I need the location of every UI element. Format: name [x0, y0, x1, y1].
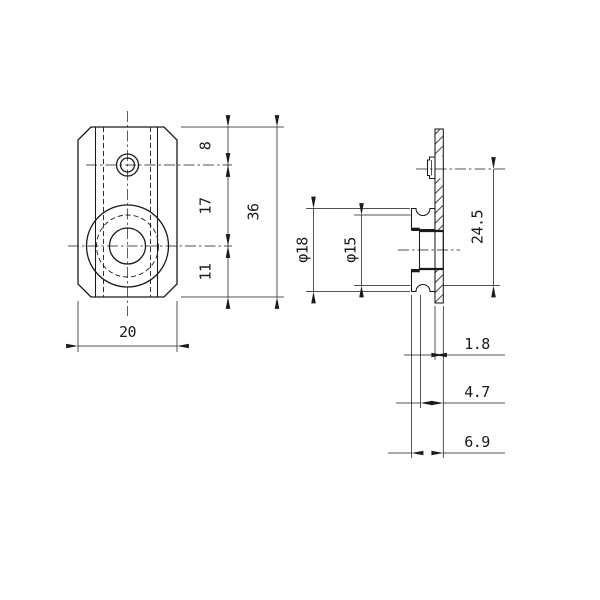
plate-hatch-bottom — [436, 270, 443, 303]
dim-text-36: 36 — [245, 203, 263, 221]
drawing-svg: 8 17 11 36 20 — [0, 0, 600, 600]
dim-text-1-8: 1.8 — [464, 335, 490, 353]
dim-text-phi15: φ15 — [342, 237, 360, 263]
dim-text-24-5: 24.5 — [469, 210, 487, 244]
dim-text-8: 8 — [197, 141, 215, 150]
dim-text-6-9: 6.9 — [464, 433, 490, 451]
dim-text-11: 11 — [197, 263, 215, 281]
dim-text-phi18: φ18 — [294, 237, 312, 263]
boss-step-bar-bottom — [412, 269, 420, 272]
boss-step-bar-top — [412, 228, 420, 231]
dim-text-4-7: 4.7 — [464, 383, 490, 401]
dim-text-17: 17 — [197, 197, 215, 214]
background — [0, 0, 600, 600]
technical-drawing-canvas: 8 17 11 36 20 — [0, 0, 600, 600]
plate-hatch-middle — [436, 179, 443, 231]
dim-text-20: 20 — [119, 323, 137, 341]
plate-hatch-top — [436, 130, 443, 157]
